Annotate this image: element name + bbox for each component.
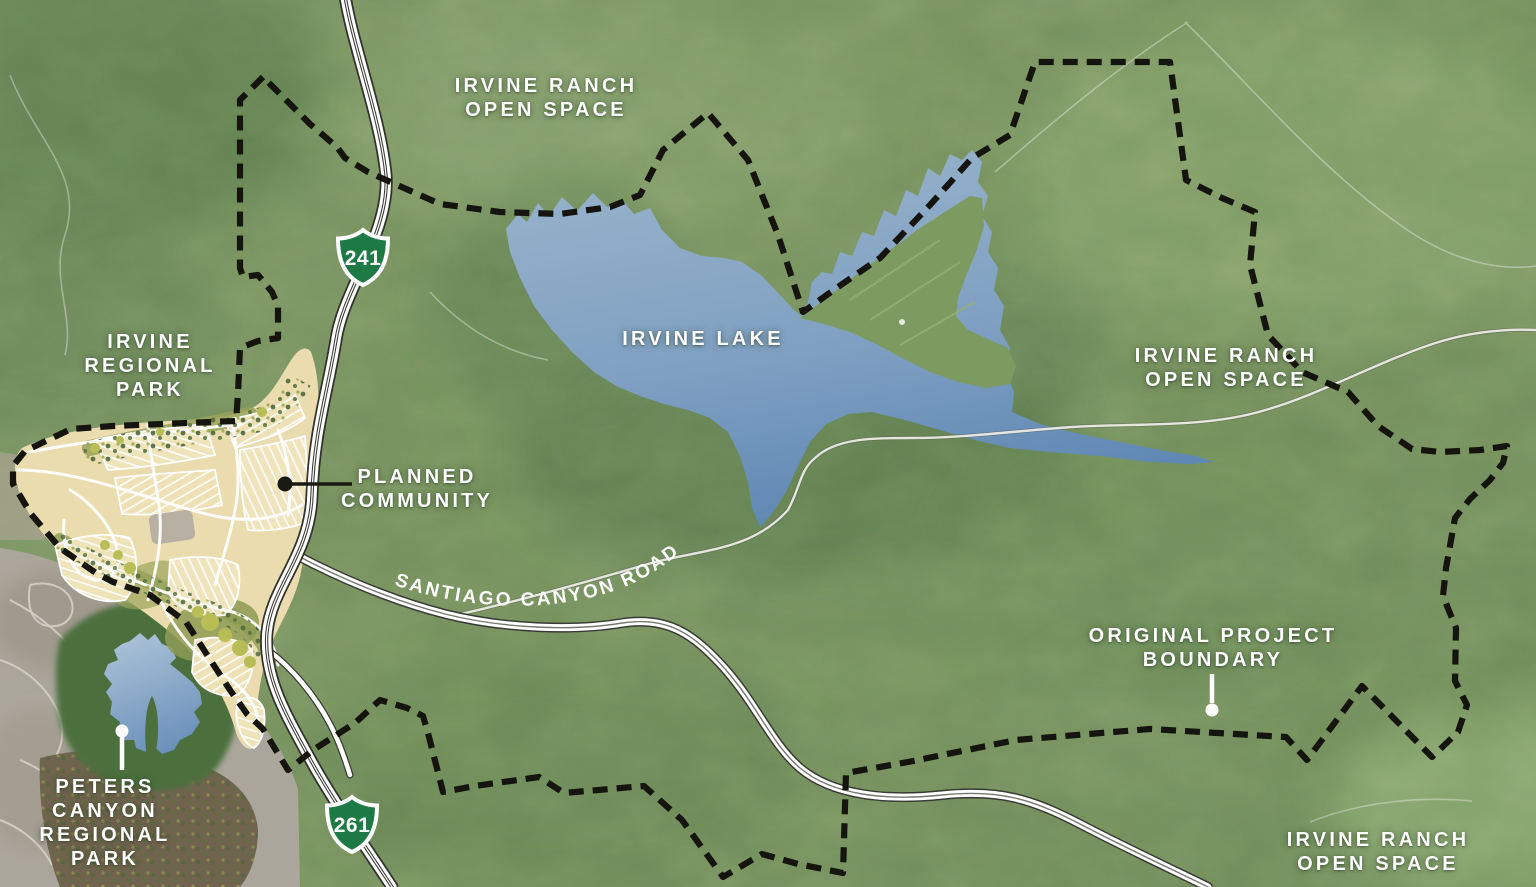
svg-text:261: 261 [334, 814, 371, 837]
planned-community-map: SANTIAGO CANYON ROAD 241 261 IRVINE RANC… [0, 0, 1536, 887]
svg-text:241: 241 [345, 247, 382, 270]
map-canvas: SANTIAGO CANYON ROAD 241 261 [0, 0, 1536, 887]
